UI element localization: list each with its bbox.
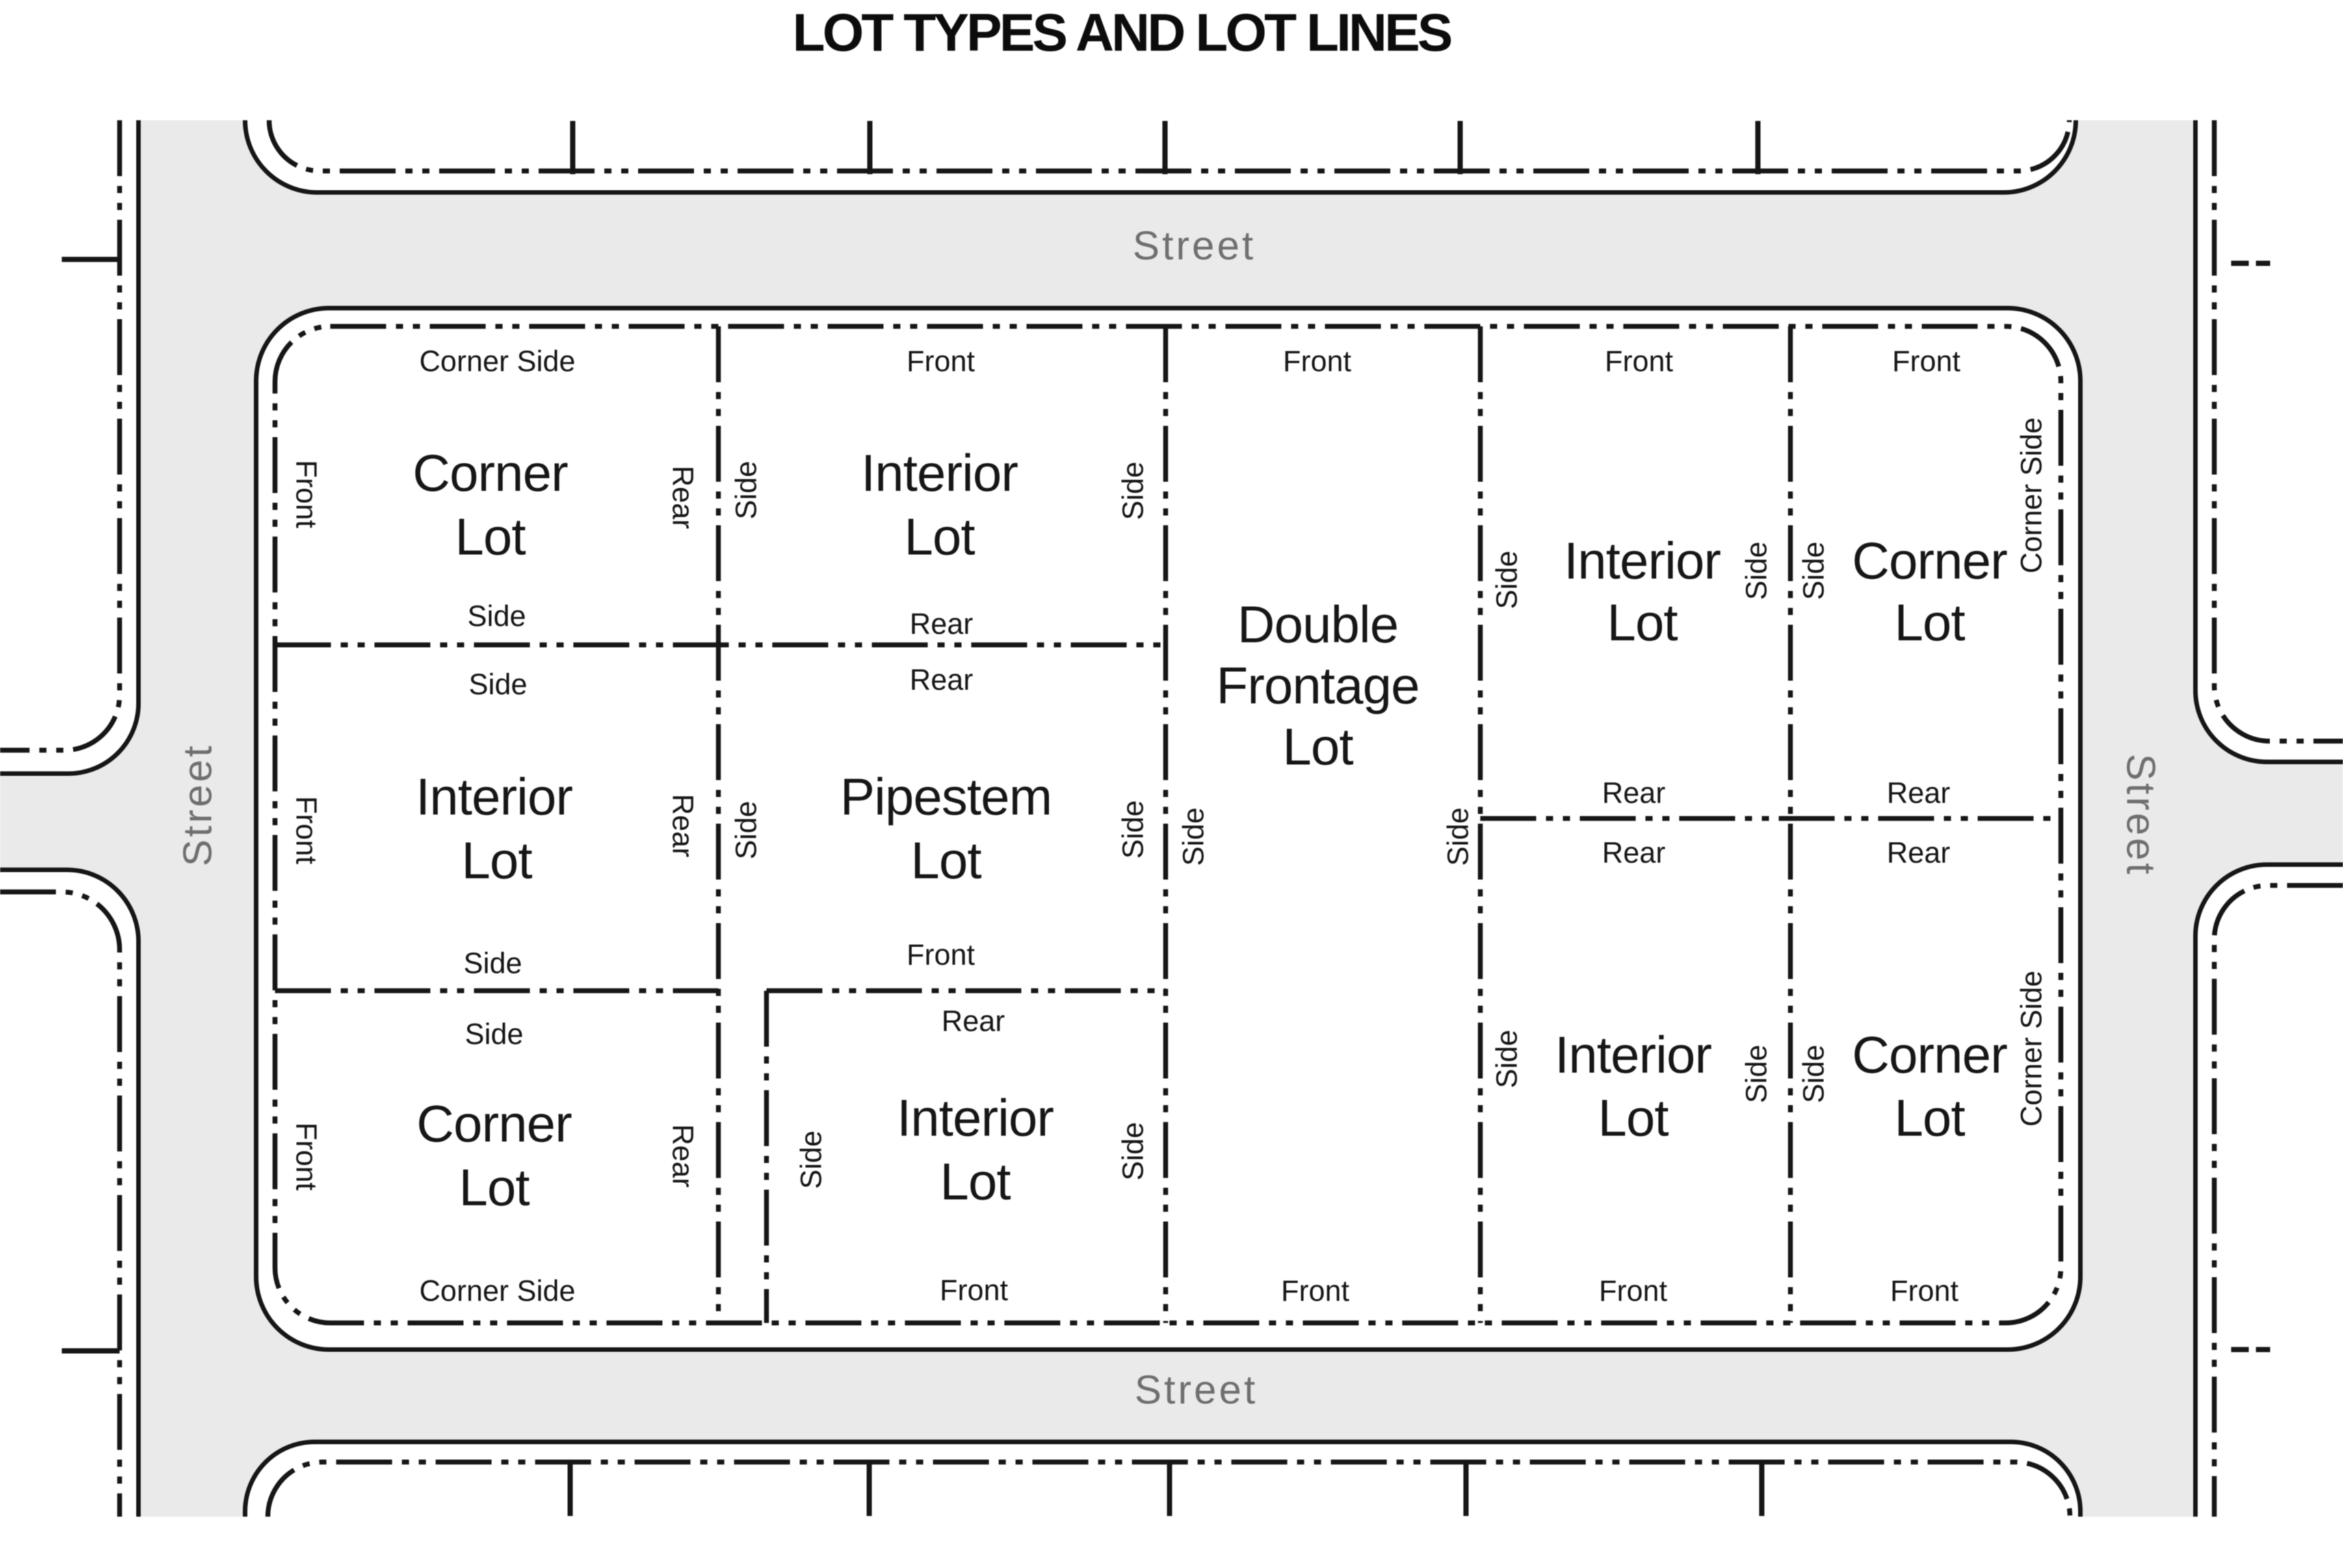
svg-text:Corner Side: Corner Side (419, 1274, 575, 1307)
svg-text:Rear: Rear (666, 794, 700, 857)
svg-text:Interior: Interior (897, 1089, 1054, 1147)
svg-text:Rear: Rear (1887, 776, 1950, 809)
svg-text:Street: Street (1134, 1368, 1257, 1413)
svg-text:Corner: Corner (417, 1095, 572, 1153)
svg-text:Side: Side (794, 1130, 828, 1189)
svg-text:Side: Side (1177, 807, 1210, 866)
svg-text:Lot: Lot (1607, 594, 1678, 651)
svg-text:Front: Front (906, 938, 975, 971)
svg-text:Front: Front (906, 345, 975, 378)
svg-text:Rear: Rear (1602, 776, 1666, 809)
svg-text:Interior: Interior (416, 768, 573, 826)
svg-text:Rear: Rear (910, 663, 973, 696)
svg-text:Lot: Lot (455, 508, 526, 566)
svg-text:Corner: Corner (413, 444, 568, 502)
svg-text:Front: Front (1604, 345, 1673, 378)
svg-text:Rear: Rear (666, 465, 700, 529)
svg-text:Side: Side (465, 1017, 523, 1051)
svg-text:Front: Front (1890, 1274, 1959, 1307)
svg-text:Side: Side (1490, 551, 1523, 609)
svg-text:Lot: Lot (1894, 594, 1965, 651)
svg-text:Lot: Lot (940, 1153, 1011, 1210)
svg-text:Side: Side (469, 668, 527, 701)
svg-text:Corner Side: Corner Side (2015, 417, 2048, 573)
svg-text:Side: Side (729, 461, 763, 519)
svg-text:LOT TYPES AND LOT LINES: LOT TYPES AND LOT LINES (792, 3, 1451, 62)
svg-text:Street: Street (1132, 224, 1255, 268)
svg-text:Lot: Lot (1283, 718, 1354, 776)
svg-text:Corner: Corner (1852, 532, 2008, 590)
svg-text:Frontage: Frontage (1216, 657, 1419, 714)
svg-text:Interior: Interior (1555, 1026, 1712, 1084)
svg-text:Front: Front (290, 1122, 323, 1191)
svg-text:Side: Side (1116, 462, 1149, 520)
svg-text:Corner Side: Corner Side (2015, 971, 2048, 1127)
svg-text:Pipestem: Pipestem (840, 768, 1051, 826)
svg-text:Front: Front (290, 796, 323, 865)
svg-text:Corner: Corner (1852, 1026, 2008, 1084)
svg-text:Lot: Lot (462, 831, 532, 889)
svg-text:Side: Side (1797, 542, 1830, 600)
svg-text:Side: Side (1441, 807, 1474, 866)
svg-text:Lot: Lot (911, 831, 982, 889)
svg-text:Side: Side (729, 801, 763, 859)
svg-text:Double: Double (1237, 595, 1398, 653)
svg-text:Front: Front (290, 460, 323, 529)
svg-text:Rear: Rear (1887, 836, 1950, 869)
svg-text:Corner Side: Corner Side (419, 345, 575, 378)
svg-text:Side: Side (1797, 1045, 1830, 1103)
svg-text:Side: Side (1116, 1122, 1149, 1181)
svg-text:Rear: Rear (666, 1124, 700, 1188)
svg-text:Front: Front (1281, 1274, 1350, 1307)
svg-text:Rear: Rear (910, 607, 973, 640)
svg-text:Rear: Rear (941, 1004, 1005, 1038)
svg-text:Side: Side (464, 947, 522, 980)
svg-text:Interior: Interior (861, 444, 1018, 502)
svg-text:Lot: Lot (904, 508, 975, 566)
svg-text:Side: Side (1490, 1030, 1523, 1088)
svg-text:Front: Front (939, 1274, 1008, 1307)
svg-text:Side: Side (467, 599, 526, 633)
svg-text:Lot: Lot (1598, 1089, 1669, 1147)
svg-text:Lot: Lot (459, 1158, 530, 1216)
svg-text:Front: Front (1599, 1274, 1668, 1307)
svg-text:Front: Front (1283, 345, 1352, 378)
svg-text:Rear: Rear (1602, 836, 1666, 869)
svg-text:Side: Side (1116, 800, 1149, 859)
svg-text:Street: Street (176, 743, 220, 866)
svg-text:Side: Side (1740, 542, 1773, 600)
svg-text:Street: Street (2118, 753, 2163, 876)
svg-text:Side: Side (1740, 1045, 1773, 1103)
svg-text:Lot: Lot (1894, 1089, 1965, 1147)
svg-text:Front: Front (1892, 345, 1961, 378)
svg-text:Interior: Interior (1564, 532, 1721, 590)
